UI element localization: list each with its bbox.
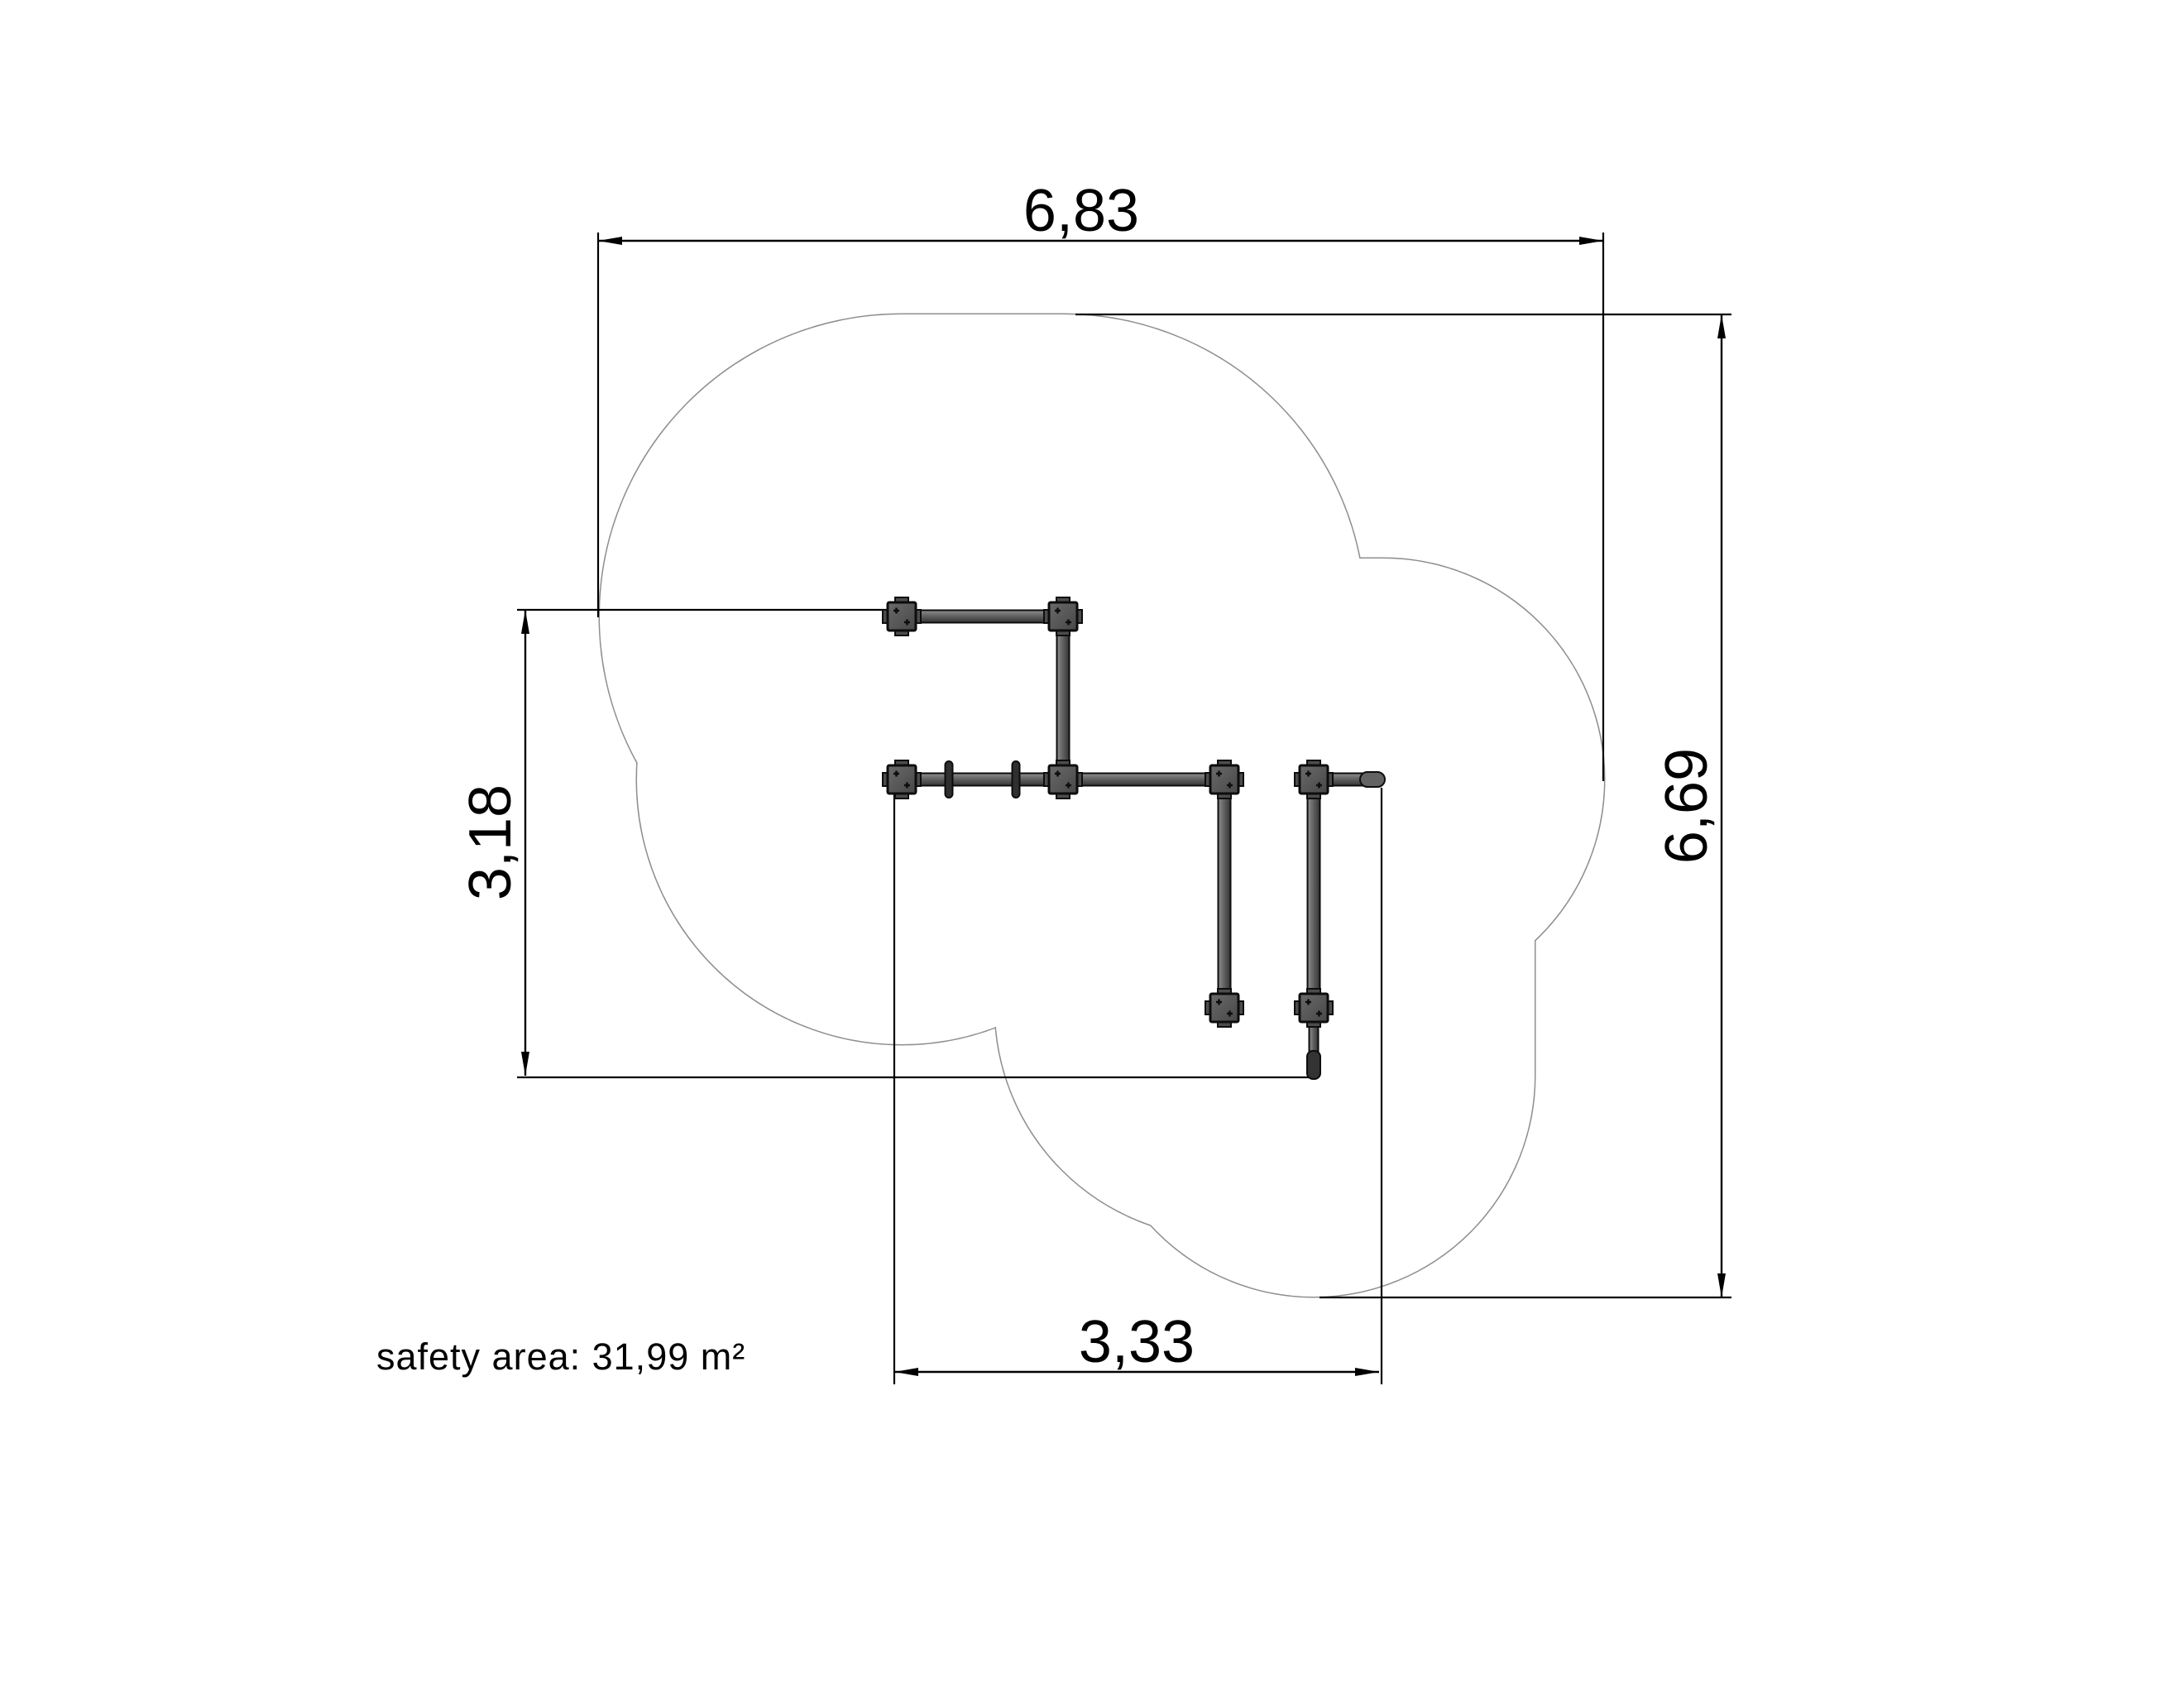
arrowhead-top	[1717, 314, 1726, 338]
arrowhead-top	[521, 610, 529, 634]
dimension-label-left: 3,18	[457, 784, 524, 900]
dimension-label-bottom: 3,33	[1079, 1309, 1195, 1375]
safety-area-outline	[600, 314, 1604, 1297]
arrowhead-bottom	[1717, 1273, 1726, 1297]
arrowhead-left	[894, 1368, 918, 1376]
hanger-tick-2	[1013, 761, 1020, 798]
arrowhead-right	[1579, 237, 1603, 245]
dimension-label-top: 6,83	[1023, 178, 1139, 244]
right-drop-beam	[1308, 786, 1320, 1003]
post	[883, 760, 921, 798]
left-drop-beam	[1219, 786, 1231, 1003]
safety-area-label: safety area: 31,99 m²	[376, 1336, 745, 1378]
connector-beam	[1057, 621, 1070, 778]
post	[1295, 989, 1333, 1027]
hanger-tick-1	[946, 761, 953, 798]
bottom-stub-tip	[1307, 1051, 1320, 1079]
post	[1205, 760, 1243, 798]
arrowhead-bottom	[521, 1052, 529, 1076]
top-beam	[908, 611, 1059, 623]
plan-drawing: 6,83 6,69 3,18 3,33 safety area: 31,99 m…	[0, 0, 2184, 1688]
post	[1044, 760, 1082, 798]
post	[1205, 989, 1243, 1027]
post	[883, 597, 921, 635]
safety-outline-fill	[600, 314, 1604, 1297]
post	[1044, 597, 1082, 635]
dimension-label-right: 6,69	[1654, 748, 1720, 864]
post	[1295, 760, 1333, 798]
side-bar-end-cap	[1360, 772, 1385, 787]
arrowhead-right	[1355, 1368, 1379, 1376]
arrowhead-left	[598, 237, 622, 245]
